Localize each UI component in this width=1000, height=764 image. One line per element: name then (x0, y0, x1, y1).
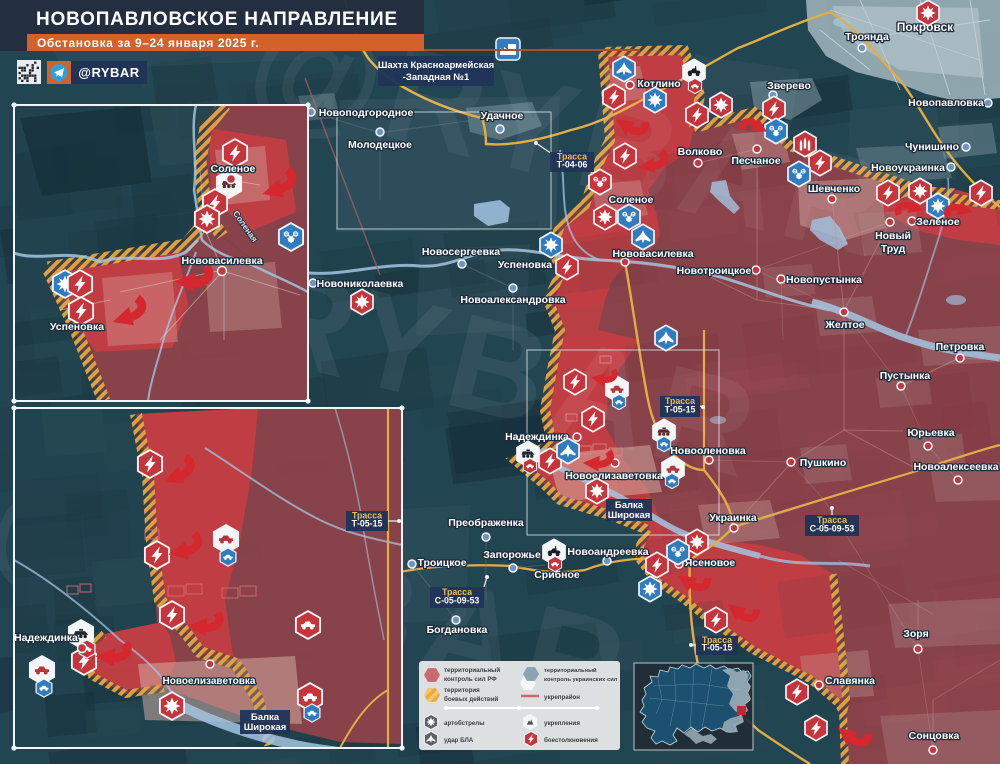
svg-text:@RYBAR: @RYBAR (78, 65, 140, 80)
svg-text:Петровка: Петровка (936, 341, 985, 353)
svg-text:Шахта Красноармейская: Шахта Красноармейская (378, 60, 494, 71)
svg-text:Преображенка: Преображенка (448, 517, 524, 529)
svg-text:Троицкое: Троицкое (417, 557, 466, 569)
svg-text:Соленое: Соленое (211, 163, 256, 175)
svg-text:территориальный: территориальный (544, 667, 597, 674)
svg-text:Новопавловка: Новопавловка (908, 97, 984, 109)
svg-text:Зоря: Зоря (903, 628, 928, 640)
svg-text:Украинка: Украинка (709, 512, 757, 524)
svg-text:укрепления: укрепления (544, 720, 580, 727)
svg-text:удар БЛА: удар БЛА (444, 737, 474, 744)
svg-text:Славянка: Славянка (825, 675, 875, 687)
svg-text:Новоукраинка: Новоукраинка (871, 162, 945, 174)
svg-text:Надеждинка: Надеждинка (505, 431, 569, 443)
svg-text:С-05-09-53: С-05-09-53 (435, 596, 480, 606)
svg-text:Новоандреевка: Новоандреевка (567, 546, 648, 558)
svg-text:Т-05-15: Т-05-15 (665, 405, 696, 415)
svg-text:Труд: Труд (881, 243, 906, 255)
svg-text:Новоподгородное: Новоподгородное (319, 107, 414, 119)
svg-text:артобстрелы: артобстрелы (444, 720, 485, 727)
svg-text:Юрьевка: Юрьевка (907, 427, 954, 439)
svg-text:Котлино: Котлино (637, 78, 680, 90)
svg-text:территориальный: территориальный (444, 667, 500, 674)
svg-text:Новооленовка: Новооленовка (670, 445, 746, 457)
svg-text:Новониколаевка: Новониколаевка (317, 278, 404, 290)
svg-text:Широкая: Широкая (608, 510, 651, 521)
svg-text:Пустынка: Пустынка (880, 370, 931, 382)
svg-text:боестолкновения: боестолкновения (544, 737, 598, 744)
svg-text:Широкая: Широкая (244, 722, 287, 733)
svg-text:Удачное: Удачное (481, 110, 524, 122)
svg-text:укрепрайон: укрепрайон (544, 694, 580, 701)
svg-text:Богдановка: Богдановка (427, 624, 488, 636)
svg-text:Волково: Волково (678, 146, 723, 158)
svg-text:Соленое: Соленое (609, 194, 654, 206)
svg-text:Молодецкое: Молодецкое (348, 139, 412, 151)
svg-text:Новоелизаветовка: Новоелизаветовка (163, 676, 256, 687)
svg-text:Пушкино: Пушкино (800, 457, 847, 469)
svg-text:Надеждинка: Надеждинка (14, 632, 78, 644)
svg-text:Новоелизаветовка: Новоелизаветовка (565, 470, 663, 482)
svg-text:Успеновка: Успеновка (50, 321, 104, 333)
svg-text:Новопустынка: Новопустынка (786, 274, 862, 286)
svg-text:С-05-09-53: С-05-09-53 (810, 524, 855, 534)
svg-text:контроль украинских сил: контроль украинских сил (544, 677, 618, 683)
svg-text:Успеновка: Успеновка (498, 259, 552, 271)
svg-text:Новоалександровка: Новоалександровка (460, 294, 565, 306)
svg-text:Желтое: Желтое (824, 319, 864, 331)
svg-text:Новоалексеевка: Новоалексеевка (913, 461, 998, 473)
svg-text:НОВОПАВЛОВСКОЕ НАПРАВЛЕНИЕ: НОВОПАВЛОВСКОЕ НАПРАВЛЕНИЕ (36, 9, 398, 30)
svg-text:Обстановка за 9–24 января 2025: Обстановка за 9–24 января 2025 г. (37, 36, 259, 50)
svg-text:Новый: Новый (875, 230, 911, 242)
svg-text:Чунишино: Чунишино (905, 141, 959, 153)
svg-text:Т-05-15: Т-05-15 (702, 643, 733, 653)
svg-text:Песчаное: Песчаное (731, 155, 781, 167)
svg-text:Запорожье: Запорожье (483, 549, 541, 561)
svg-text:Т-05-15: Т-05-15 (352, 519, 383, 529)
svg-text:Шевченко: Шевченко (808, 183, 860, 195)
svg-text:Нововасилевка: Нововасилевка (181, 255, 262, 267)
svg-text:Новосергеевка: Новосергеевка (422, 246, 500, 258)
svg-text:Троянда: Троянда (845, 31, 889, 43)
svg-text:Зверево: Зверево (767, 80, 811, 92)
svg-text:Т-04-06: Т-04-06 (557, 160, 588, 170)
svg-text:Нововасилевка: Нововасилевка (612, 248, 693, 260)
svg-text:боевых действий: боевых действий (444, 696, 499, 703)
svg-text:территория: территория (444, 687, 480, 694)
svg-text:-Западная №1: -Западная №1 (403, 72, 470, 83)
svg-text:Сонцовка: Сонцовка (909, 730, 960, 742)
svg-text:Ясеновое: Ясеновое (685, 557, 736, 569)
svg-text:Новотроицкое: Новотроицкое (677, 265, 752, 277)
svg-text:контроль сил РФ: контроль сил РФ (444, 676, 497, 683)
